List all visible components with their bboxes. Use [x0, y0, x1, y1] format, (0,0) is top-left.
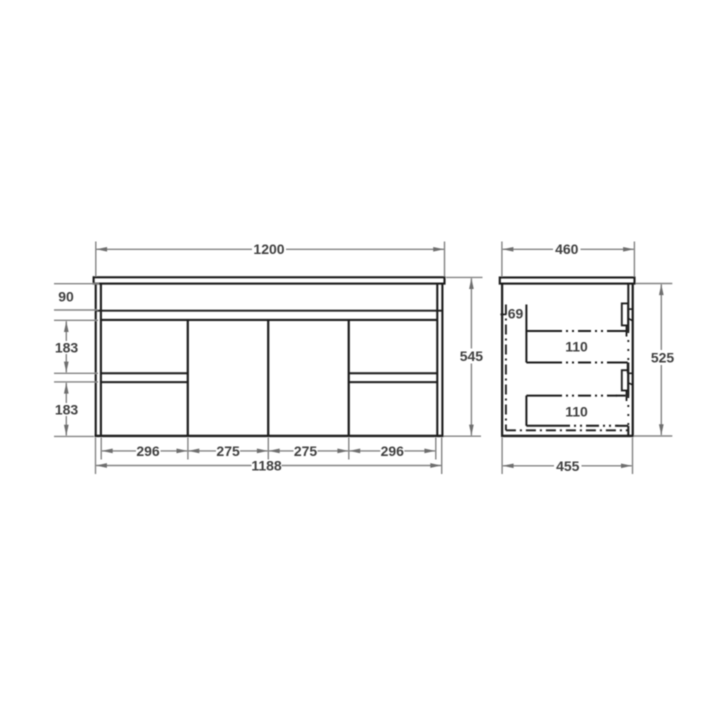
svg-text:90: 90: [58, 289, 74, 305]
svg-text:1188: 1188: [251, 457, 282, 473]
svg-text:183: 183: [55, 402, 79, 418]
svg-text:110: 110: [565, 338, 588, 354]
svg-text:275: 275: [216, 443, 240, 459]
svg-text:455: 455: [556, 458, 580, 474]
svg-text:545: 545: [460, 348, 484, 364]
svg-text:460: 460: [555, 241, 579, 257]
svg-text:110: 110: [565, 404, 588, 420]
svg-text:183: 183: [55, 340, 79, 356]
svg-text:1200: 1200: [253, 241, 284, 257]
svg-text:69: 69: [508, 305, 524, 321]
svg-text:525: 525: [651, 350, 675, 366]
svg-text:296: 296: [381, 443, 405, 459]
svg-text:275: 275: [294, 443, 318, 459]
svg-text:296: 296: [136, 443, 160, 459]
